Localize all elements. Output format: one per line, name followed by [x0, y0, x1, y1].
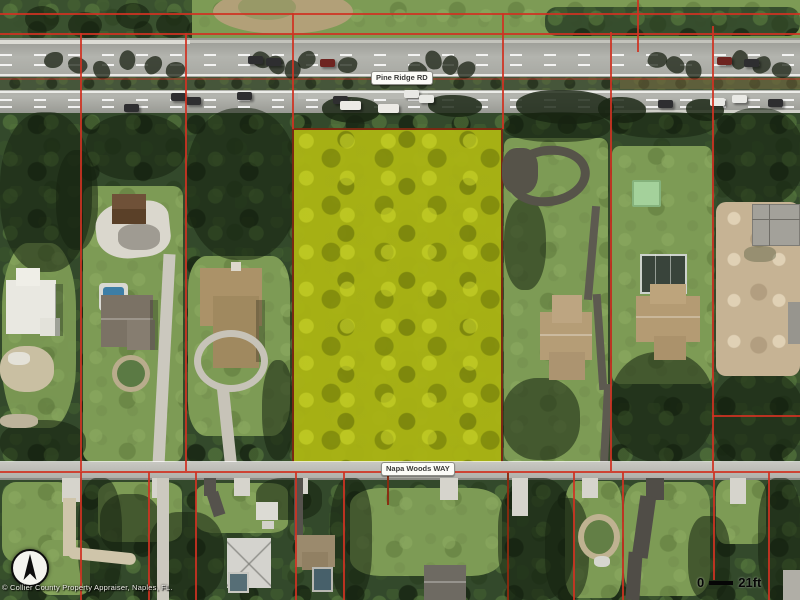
structure-line: [752, 219, 800, 220]
parcel-line: [80, 472, 82, 600]
scale-start-label: 0: [697, 575, 704, 590]
car: [658, 100, 673, 108]
tree-cluster: [712, 108, 800, 206]
map-canvas[interactable]: Pine Ridge RD Napa Woods WAY 0 21ft © Co…: [0, 0, 800, 600]
road-label-napa-woods: Napa Woods WAY: [381, 462, 455, 476]
chimney: [231, 262, 241, 271]
parcel-line: [622, 472, 624, 600]
pool-enclosure: [228, 572, 249, 593]
parcel-line: [0, 33, 800, 35]
parcel-line: [387, 472, 389, 505]
scale-bar-line: [709, 581, 733, 585]
car: [732, 95, 747, 103]
truck: [378, 104, 399, 113]
parcel-line: [768, 472, 770, 600]
driveway: [502, 148, 538, 194]
palm-tree-shadow: [685, 60, 701, 79]
parcel-line: [195, 472, 197, 600]
path: [783, 570, 800, 600]
driveway: [157, 478, 169, 600]
circular-driveway: [194, 330, 268, 392]
driveway-apron: [582, 478, 598, 498]
house-shadow: [55, 284, 63, 336]
sidewalk: [0, 40, 190, 44]
driveway-apron: [730, 478, 746, 504]
tree-cluster: [262, 360, 294, 460]
tree-cluster: [504, 198, 546, 290]
driveway-stain: [118, 224, 160, 250]
truck: [340, 101, 361, 110]
roof-ridge: [101, 318, 153, 320]
tree-cluster: [504, 112, 610, 142]
parcel-line: [573, 472, 575, 600]
tree-cluster: [86, 114, 186, 180]
structure: [788, 302, 800, 344]
basketball-court: [632, 180, 661, 207]
path: [0, 414, 38, 428]
lane-line: [0, 99, 800, 101]
scale-end-label: 21ft: [738, 575, 761, 590]
tree-cluster: [186, 108, 298, 260]
garden-circle: [112, 355, 150, 392]
car: [320, 59, 335, 67]
parcel-line: [713, 472, 715, 580]
parcel-line: [0, 13, 800, 15]
parcel-line: [507, 472, 509, 600]
tree-cluster: [545, 7, 800, 36]
roof-ridge: [424, 581, 466, 583]
tree-cluster: [56, 150, 98, 250]
parcel-line: [295, 472, 297, 600]
parcel-line: [610, 32, 612, 471]
car: [186, 97, 201, 105]
tree-cluster: [712, 370, 800, 464]
road-edge: [0, 478, 800, 480]
tree-cluster: [330, 478, 372, 600]
tree-cluster: [610, 352, 714, 462]
car: [404, 90, 419, 98]
lawn: [350, 488, 502, 576]
car: [768, 99, 783, 107]
sidewalk: [190, 40, 800, 43]
shed-roof: [262, 521, 274, 529]
house-roof: [650, 284, 686, 304]
car: [266, 58, 281, 66]
north-arrow-compass: [11, 549, 49, 587]
driveway-apron: [234, 478, 250, 496]
parcel-line: [185, 33, 187, 471]
structure-line: [769, 204, 770, 246]
highlighted-parcel[interactable]: [292, 128, 503, 469]
parcel-line: [712, 415, 800, 417]
parcel-line: [292, 13, 294, 129]
house-roof: [16, 268, 40, 286]
parcel-line: [712, 26, 714, 471]
car: [237, 92, 252, 100]
parcel-line: [80, 33, 82, 471]
tree-cluster: [502, 378, 580, 460]
road-label-pine-ridge: Pine Ridge RD: [371, 71, 433, 85]
house-roof: [552, 295, 582, 323]
driveway-apron: [512, 478, 528, 516]
car: [744, 59, 759, 67]
tree-cluster: [612, 112, 714, 138]
north-arrow-icon: [13, 551, 47, 585]
parcel-line: [637, 0, 639, 52]
house-roof: [654, 336, 686, 360]
shed-roof-shade: [112, 209, 146, 224]
pool-enclosure: [312, 567, 333, 592]
shed-roof: [256, 502, 278, 520]
patio-detail: [8, 352, 30, 365]
parcel-line: [343, 472, 345, 600]
roof-ridge: [540, 334, 592, 336]
car: [171, 93, 186, 101]
tree-cluster: [100, 494, 160, 554]
tree-crown: [116, 3, 150, 29]
car: [419, 95, 434, 103]
attribution-text: © Collier County Property Appraiser, Nap…: [2, 583, 173, 592]
parcel-line: [502, 13, 504, 129]
house-roof: [549, 352, 585, 380]
car: [124, 104, 139, 112]
path: [594, 556, 610, 567]
driveway-apron: [440, 478, 458, 500]
structure: [752, 204, 800, 246]
garden-circle: [578, 514, 620, 560]
lane-line: [0, 106, 800, 108]
roof-ridge: [636, 316, 700, 318]
parcel-line: [148, 472, 150, 600]
house-shadow: [150, 300, 158, 350]
car: [248, 56, 263, 64]
car: [717, 57, 732, 65]
sand-stain: [744, 246, 776, 262]
scale-bar: 0 21ft: [697, 575, 761, 590]
tree-crown: [25, 6, 59, 32]
